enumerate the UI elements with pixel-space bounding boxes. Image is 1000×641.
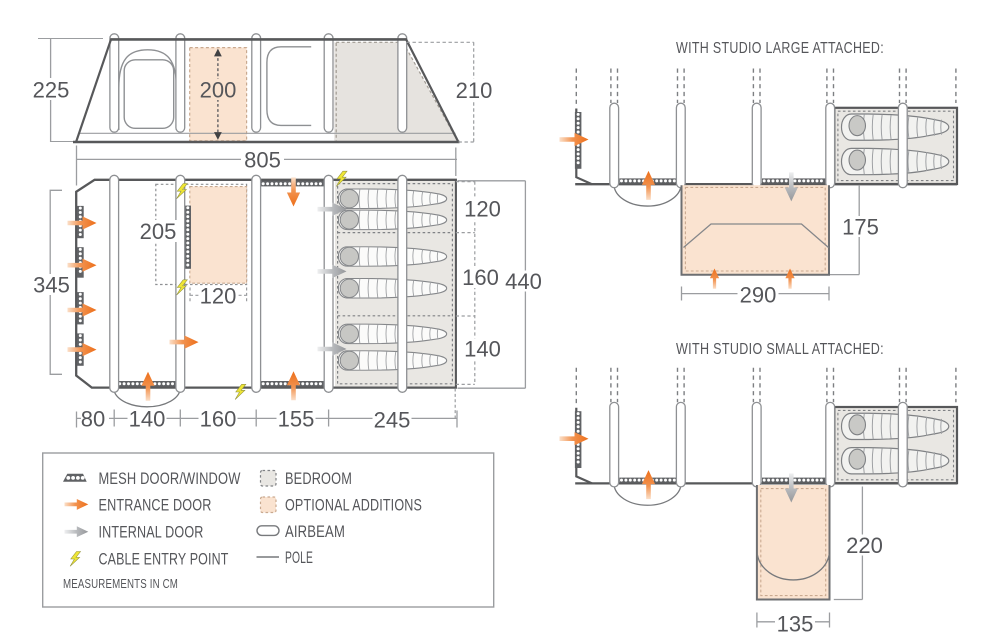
svg-text:CABLE ENTRY POINT: CABLE ENTRY POINT [99,551,229,569]
svg-text:225: 225 [33,78,70,103]
svg-text:ENTRANCE DOOR: ENTRANCE DOOR [99,497,212,515]
svg-text:160: 160 [200,407,237,432]
svg-text:WITH STUDIO LARGE ATTACHED:: WITH STUDIO LARGE ATTACHED: [676,40,884,57]
svg-text:245: 245 [374,408,411,433]
svg-text:200: 200 [200,78,237,103]
svg-text:135: 135 [777,612,814,637]
svg-text:220: 220 [846,533,883,558]
svg-text:WITH STUDIO SMALL ATTACHED:: WITH STUDIO SMALL ATTACHED: [676,341,884,358]
svg-text:AIRBEAM: AIRBEAM [285,523,345,541]
svg-text:INTERNAL DOOR: INTERNAL DOOR [99,524,204,542]
svg-text:OPTIONAL ADDITIONS: OPTIONAL ADDITIONS [285,497,422,515]
svg-text:120: 120 [464,197,501,222]
svg-text:345: 345 [33,273,70,298]
svg-text:155: 155 [278,407,315,432]
svg-text:BEDROOM: BEDROOM [285,470,352,488]
svg-text:80: 80 [81,407,105,432]
svg-text:205: 205 [140,219,177,244]
svg-text:140: 140 [129,407,166,432]
svg-text:210: 210 [456,78,493,103]
svg-text:POLE: POLE [285,549,313,567]
svg-text:440: 440 [505,269,542,294]
svg-text:MEASUREMENTS IN CM: MEASUREMENTS IN CM [63,577,178,591]
svg-text:805: 805 [244,148,281,173]
svg-text:175: 175 [842,215,879,240]
svg-text:160: 160 [462,265,499,290]
svg-text:290: 290 [740,283,777,308]
svg-text:MESH DOOR/WINDOW: MESH DOOR/WINDOW [99,470,241,488]
svg-text:140: 140 [464,337,501,362]
svg-text:120: 120 [200,284,237,309]
